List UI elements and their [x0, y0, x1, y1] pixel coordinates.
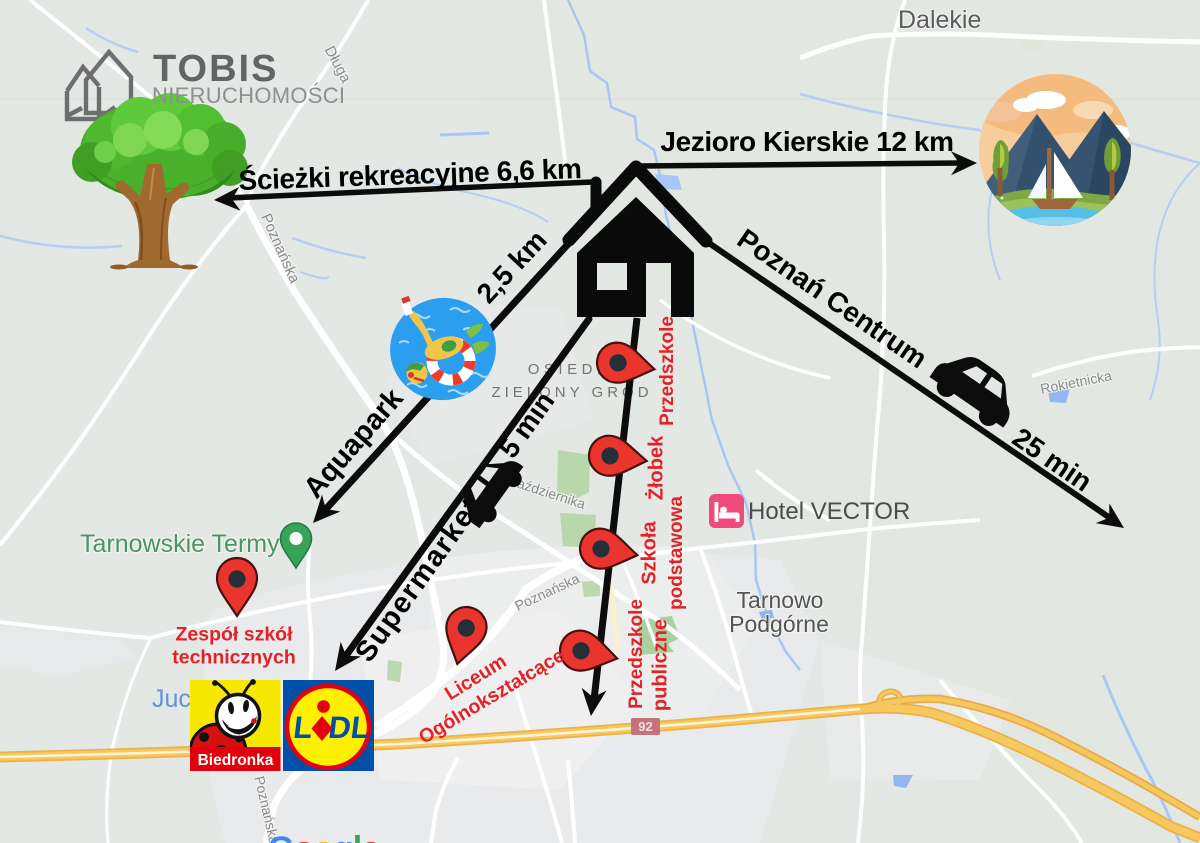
- svg-text:DL: DL: [327, 710, 373, 745]
- svg-text:NIERUCHOMOŚCI: NIERUCHOMOŚCI: [152, 83, 345, 108]
- svg-text:Biedronka: Biedronka: [198, 752, 274, 769]
